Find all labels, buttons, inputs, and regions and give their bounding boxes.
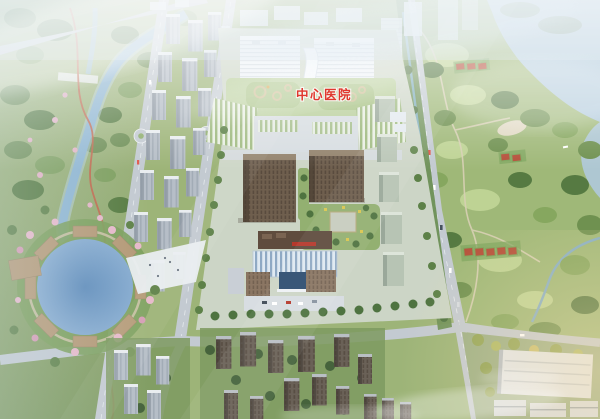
- rendering-canvas: 中心医院: [0, 0, 600, 419]
- aerial-rendering: 中心医院: [0, 0, 600, 419]
- hospital-name-label: 中心医院: [296, 87, 352, 102]
